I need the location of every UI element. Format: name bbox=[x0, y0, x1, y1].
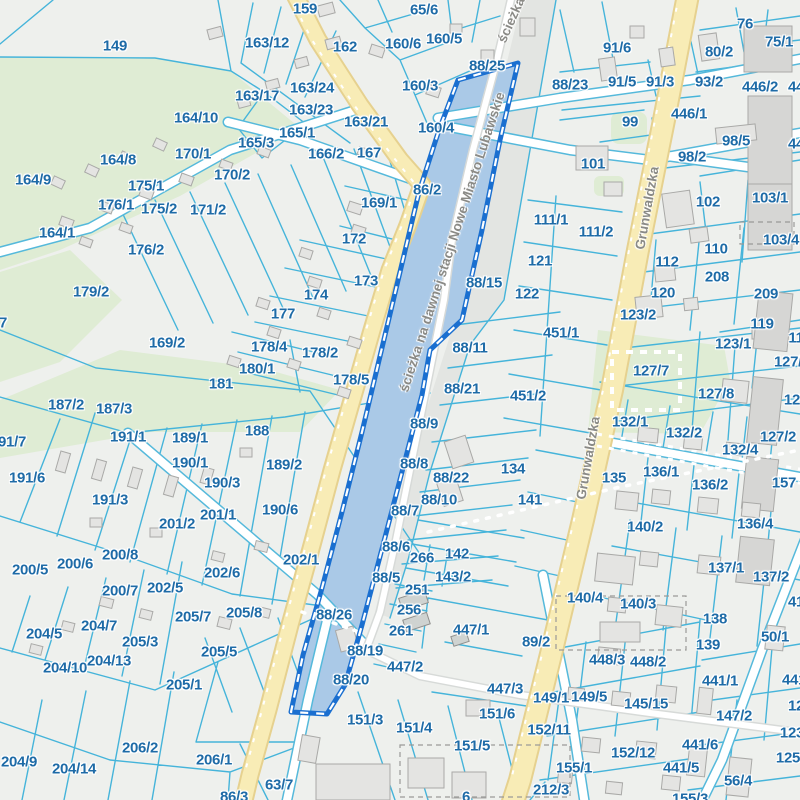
building-footprint bbox=[595, 553, 636, 585]
building-footprint bbox=[637, 427, 658, 443]
building-footprint bbox=[654, 265, 675, 282]
building-footprint bbox=[683, 435, 702, 450]
cadastral-map[interactable]: 14915965/6163/12162160/6160/588/25163/24… bbox=[0, 0, 800, 800]
building-footprint bbox=[683, 297, 698, 310]
building-footprint bbox=[240, 448, 252, 457]
building-footprint bbox=[747, 377, 784, 446]
building-footprint bbox=[744, 26, 792, 72]
building-footprint bbox=[753, 290, 793, 351]
building-footprint bbox=[605, 781, 622, 795]
building-footprint bbox=[639, 551, 658, 567]
building-footprint bbox=[659, 47, 675, 67]
building-footprint bbox=[698, 33, 719, 61]
building-footprint bbox=[661, 775, 680, 791]
building-footprint bbox=[748, 184, 792, 250]
building-footprint bbox=[450, 24, 462, 33]
building-footprint bbox=[567, 687, 584, 701]
building-footprint bbox=[604, 182, 622, 196]
building-footprint bbox=[725, 442, 742, 456]
building-footprint bbox=[651, 489, 670, 505]
building-footprint bbox=[635, 741, 657, 759]
building-footprint bbox=[630, 26, 644, 38]
building-footprint bbox=[611, 691, 630, 707]
building-footprint bbox=[741, 502, 760, 518]
building-footprint bbox=[316, 764, 390, 800]
building-footprint bbox=[90, 518, 102, 527]
building-footprint bbox=[697, 687, 714, 714]
building-footprint bbox=[721, 379, 749, 404]
building-footprint bbox=[408, 758, 444, 788]
building-footprint bbox=[697, 555, 721, 575]
building-footprint bbox=[607, 597, 626, 613]
building-footprint bbox=[765, 625, 785, 651]
building-footprint bbox=[466, 700, 490, 716]
building-footprint bbox=[615, 491, 639, 511]
building-footprint bbox=[298, 735, 320, 764]
building-footprint bbox=[481, 50, 494, 61]
building-footprint bbox=[655, 685, 677, 703]
building-footprint bbox=[635, 295, 663, 320]
building-footprint bbox=[687, 747, 708, 777]
building-footprint bbox=[576, 146, 608, 170]
building-footprint bbox=[726, 757, 752, 797]
building-footprint bbox=[600, 622, 640, 642]
building-footprint bbox=[581, 737, 600, 753]
building-footprint bbox=[150, 528, 162, 537]
building-footprint bbox=[520, 18, 535, 36]
building-footprint bbox=[452, 772, 486, 798]
building-footprint bbox=[736, 536, 775, 585]
building-footprint bbox=[655, 605, 683, 628]
building-footprint bbox=[689, 227, 709, 243]
building-footprint bbox=[599, 57, 618, 81]
map-geometry bbox=[0, 0, 800, 800]
building-footprint bbox=[697, 497, 718, 514]
building-footprint bbox=[662, 190, 694, 228]
